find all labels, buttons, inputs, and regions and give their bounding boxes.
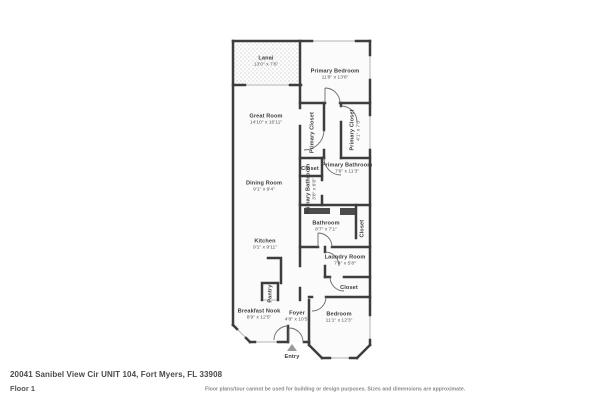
floorplan-drawing	[0, 0, 600, 400]
property-address: 20041 Sanibel View Cir UNIT 104, Fort My…	[10, 370, 222, 379]
floor-label: Floor 1	[10, 384, 35, 393]
entry-arrow-icon	[287, 344, 297, 351]
disclaimer-text: Floor plans/tour cannot be used for buil…	[205, 386, 505, 396]
lanai-screened-area	[235, 43, 299, 85]
bathroom-fixtures	[304, 208, 355, 215]
floorplan-page: Lanai13'0" x 7'6" Primary Bedroom11'8" x…	[0, 0, 600, 400]
floor-area	[233, 41, 370, 358]
